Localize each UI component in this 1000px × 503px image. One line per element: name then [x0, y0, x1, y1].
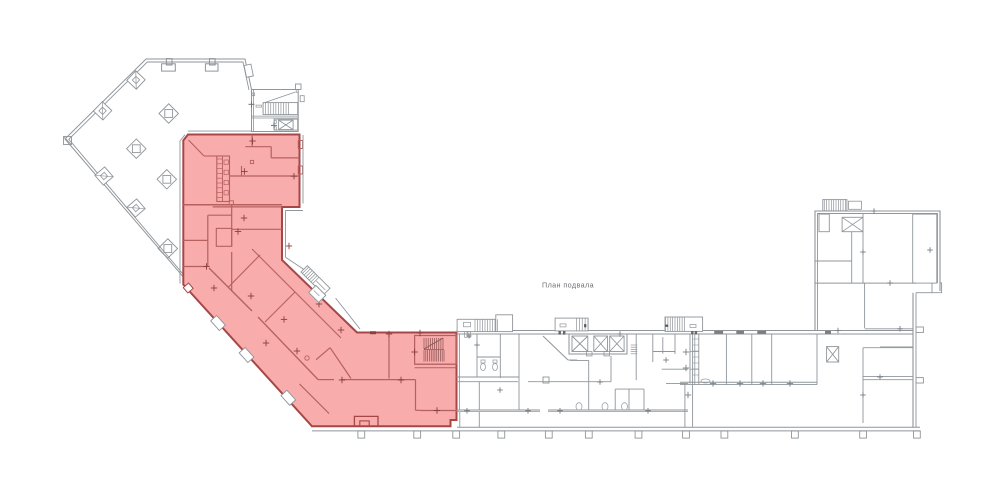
svg-text:План подвала: План подвала: [542, 281, 594, 290]
